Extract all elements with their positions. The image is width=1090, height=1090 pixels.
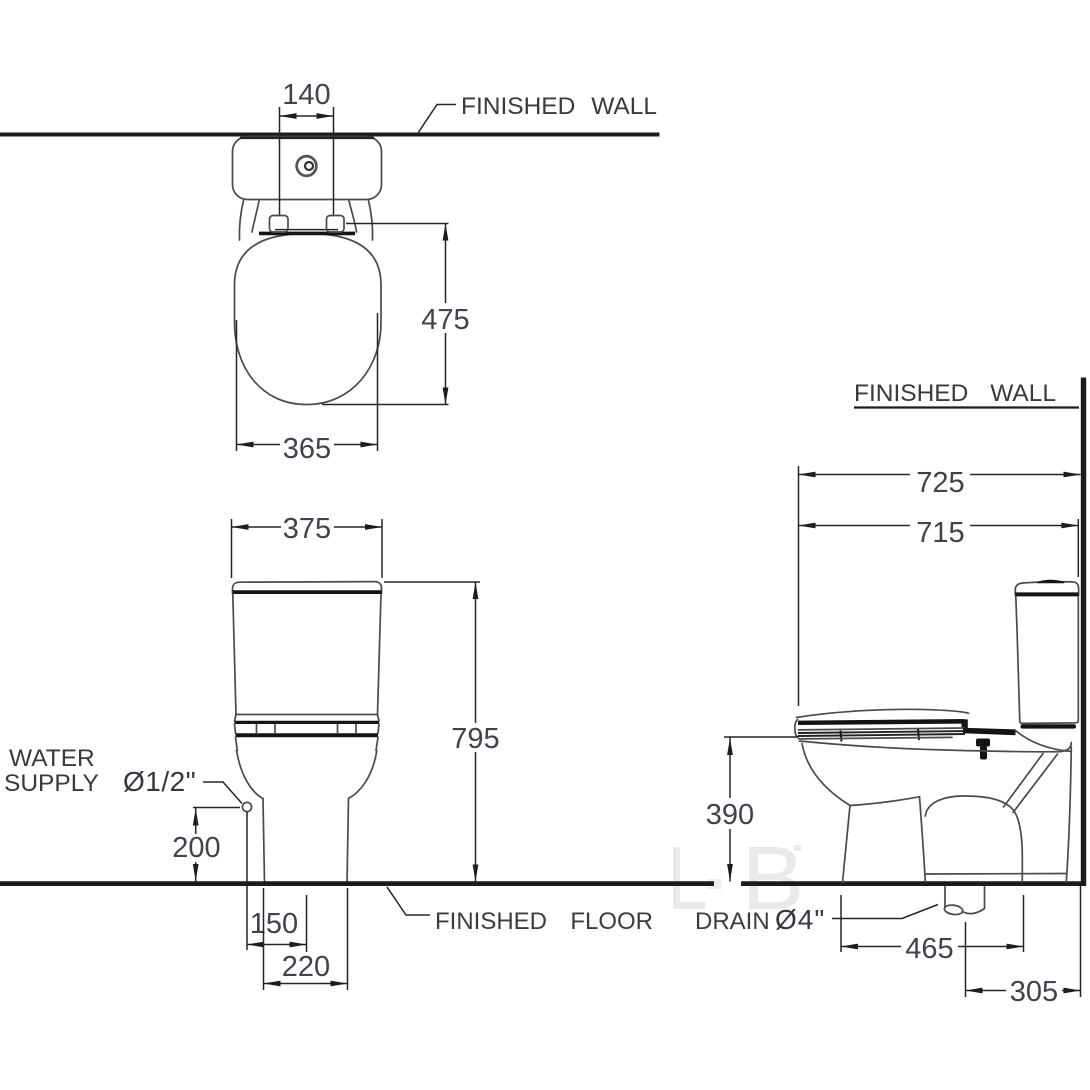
svg-text:305: 305	[1010, 976, 1058, 1008]
svg-text:465: 465	[905, 933, 953, 965]
svg-text:FLOOR: FLOOR	[570, 908, 653, 935]
svg-text:WATER: WATER	[9, 745, 95, 772]
svg-text:390: 390	[706, 799, 754, 831]
svg-text:725: 725	[916, 467, 964, 499]
svg-text:365: 365	[283, 433, 331, 465]
svg-text:150: 150	[250, 908, 298, 940]
svg-text:FINISHED: FINISHED	[461, 93, 575, 120]
svg-text:140: 140	[282, 79, 330, 111]
svg-text:715: 715	[916, 517, 964, 549]
svg-text:WALL: WALL	[591, 93, 657, 120]
svg-text:795: 795	[451, 723, 499, 755]
svg-text:Ø1/2": Ø1/2"	[123, 766, 196, 797]
svg-text:375: 375	[283, 513, 331, 545]
svg-text:200: 200	[172, 832, 220, 864]
svg-text:FINISHED: FINISHED	[854, 380, 968, 407]
svg-text:475: 475	[421, 304, 469, 336]
svg-text:220: 220	[282, 951, 330, 983]
svg-text:SUPPLY: SUPPLY	[4, 770, 99, 797]
svg-text:Ø4": Ø4"	[775, 904, 825, 935]
svg-text:DRAIN: DRAIN	[695, 908, 770, 935]
svg-text:WALL: WALL	[990, 380, 1056, 407]
svg-text:FINISHED: FINISHED	[435, 908, 547, 935]
